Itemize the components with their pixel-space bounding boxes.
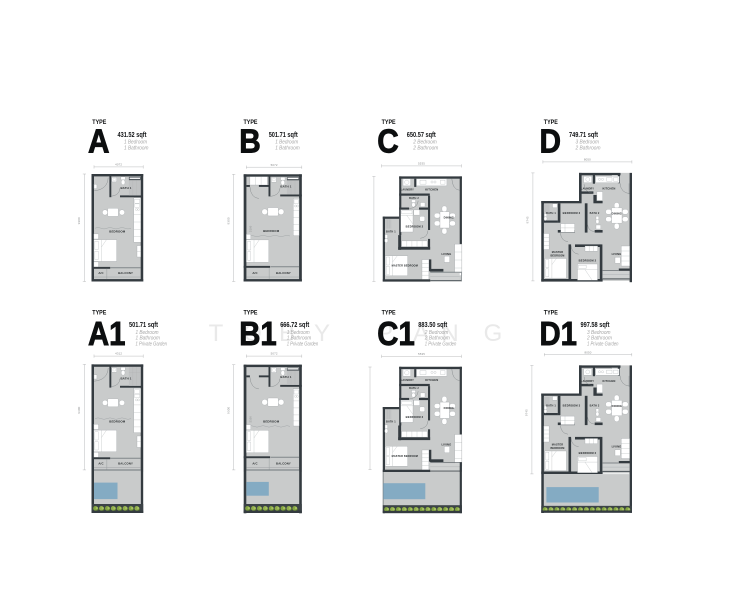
svg-text:2 Bathroom: 2 Bathroom	[575, 145, 602, 151]
svg-text:9300: 9300	[77, 406, 81, 413]
svg-text:BATH 2: BATH 2	[590, 212, 600, 215]
svg-text:BATH 1: BATH 1	[120, 186, 131, 190]
svg-text:A1: A1	[88, 315, 126, 352]
svg-text:KITCHEN: KITCHEN	[425, 188, 438, 192]
svg-text:BATH 2: BATH 2	[590, 404, 600, 407]
svg-text:DINING: DINING	[612, 212, 622, 216]
svg-text:DINING: DINING	[444, 216, 454, 220]
svg-text:LAUNDRY: LAUNDRY	[401, 379, 414, 382]
svg-text:LIVING: LIVING	[612, 252, 622, 256]
svg-text:BEDROOM: BEDROOM	[263, 229, 280, 233]
svg-text:9745: 9745	[525, 409, 529, 416]
svg-text:MASTER BEDROOM: MASTER BEDROOM	[392, 265, 418, 268]
svg-text:BALCONY: BALCONY	[276, 271, 291, 275]
svg-text:T: T	[209, 320, 224, 347]
svg-text:BATH 1: BATH 1	[280, 185, 291, 189]
svg-text:9745: 9745	[526, 216, 530, 223]
svg-text:883.50 sqft: 883.50 sqft	[418, 320, 447, 329]
svg-text:KITCHEN: KITCHEN	[425, 378, 438, 382]
svg-text:2 Bathroom: 2 Bathroom	[412, 145, 439, 151]
svg-text:B1: B1	[239, 315, 277, 352]
svg-text:LAUNDRY: LAUNDRY	[401, 189, 414, 192]
svg-text:501.71 sqft: 501.71 sqft	[269, 130, 298, 139]
svg-text:BEDROOM 2: BEDROOM 2	[406, 224, 424, 228]
svg-text:D: D	[540, 122, 562, 159]
svg-text:B: B	[239, 122, 261, 159]
svg-text:BATH 2: BATH 2	[409, 387, 419, 390]
svg-text:LAUNDRY: LAUNDRY	[581, 380, 594, 383]
svg-text:8050: 8050	[584, 158, 591, 162]
svg-text:BATH 1: BATH 1	[386, 421, 396, 424]
svg-text:BEDROOM: BEDROOM	[550, 447, 564, 450]
svg-text:5072: 5072	[271, 163, 278, 167]
svg-text:LIVING: LIVING	[441, 252, 451, 256]
svg-text:BEDROOM 2: BEDROOM 2	[579, 451, 597, 455]
svg-text:5100: 5100	[248, 225, 252, 232]
svg-text:BEDROOM 2: BEDROOM 2	[579, 259, 597, 263]
svg-text:8050: 8050	[585, 350, 592, 354]
svg-text:5072: 5072	[271, 352, 278, 356]
svg-text:G: G	[484, 320, 503, 347]
svg-text:KITCHEN: KITCHEN	[603, 186, 616, 190]
svg-text:DINING: DINING	[444, 406, 454, 410]
svg-text:BEDROOM: BEDROOM	[109, 229, 126, 233]
svg-text:666.72 sqft: 666.72 sqft	[280, 320, 309, 329]
svg-text:1 Private Garden: 1 Private Garden	[136, 341, 168, 347]
svg-text:5535: 5535	[418, 352, 425, 356]
svg-text:KITCHEN: KITCHEN	[603, 379, 616, 383]
svg-text:1 Private Garden: 1 Private Garden	[287, 341, 319, 347]
svg-text:1 Private Garden: 1 Private Garden	[587, 341, 619, 347]
svg-text:BATH 2: BATH 2	[409, 197, 419, 200]
svg-text:9300: 9300	[226, 407, 230, 414]
svg-text:BEDROOM 2: BEDROOM 2	[406, 415, 424, 419]
svg-text:501.71 sqft: 501.71 sqft	[129, 320, 158, 329]
svg-text:BEDROOM: BEDROOM	[263, 419, 280, 423]
svg-text:A/C: A/C	[98, 271, 103, 275]
svg-text:BALCONY: BALCONY	[276, 462, 291, 466]
svg-text:BATH 1: BATH 1	[386, 230, 396, 233]
svg-text:9300: 9300	[226, 217, 230, 224]
svg-text:LIVING: LIVING	[612, 445, 622, 449]
svg-text:1 Bathroom: 1 Bathroom	[124, 145, 149, 151]
svg-text:A/C: A/C	[252, 462, 257, 466]
svg-text:A: A	[88, 122, 110, 159]
svg-text:DINING: DINING	[612, 404, 622, 408]
svg-text:BATH 1: BATH 1	[546, 212, 556, 215]
svg-text:5100: 5100	[248, 416, 252, 423]
svg-text:4312: 4312	[115, 352, 122, 356]
svg-text:LAUNDRY: LAUNDRY	[581, 187, 594, 190]
svg-text:BATH 1: BATH 1	[546, 404, 556, 407]
svg-text:MASTER BEDROOM: MASTER BEDROOM	[392, 455, 418, 458]
svg-text:9300: 9300	[77, 217, 81, 224]
svg-text:C1: C1	[377, 315, 415, 352]
svg-text:BALCONY: BALCONY	[118, 271, 133, 275]
svg-text:LIVING: LIVING	[441, 442, 451, 446]
svg-text:1 Bathroom: 1 Bathroom	[275, 145, 300, 151]
svg-text:C: C	[377, 122, 399, 159]
svg-text:A/C: A/C	[252, 271, 257, 275]
svg-text:431.52 sqft: 431.52 sqft	[118, 130, 147, 139]
svg-text:BATH 1: BATH 1	[280, 375, 291, 379]
svg-text:4072: 4072	[115, 163, 122, 167]
svg-text:BEDROOM 3: BEDROOM 3	[563, 211, 581, 215]
svg-text:BEDROOM: BEDROOM	[550, 255, 564, 258]
svg-text:BEDROOM 3: BEDROOM 3	[563, 403, 581, 407]
svg-text:A/C: A/C	[98, 462, 103, 466]
svg-text:749.71 sqft: 749.71 sqft	[569, 130, 598, 139]
svg-text:D1: D1	[540, 315, 578, 352]
svg-text:997.58 sqft: 997.58 sqft	[581, 320, 610, 329]
svg-text:1 Private Garden: 1 Private Garden	[425, 341, 457, 347]
svg-text:5535: 5535	[418, 162, 425, 166]
svg-text:BALCONY: BALCONY	[118, 462, 133, 466]
svg-text:BEDROOM: BEDROOM	[109, 420, 126, 424]
svg-text:650.57 sqft: 650.57 sqft	[407, 130, 436, 139]
svg-text:BATH 1: BATH 1	[120, 377, 131, 381]
